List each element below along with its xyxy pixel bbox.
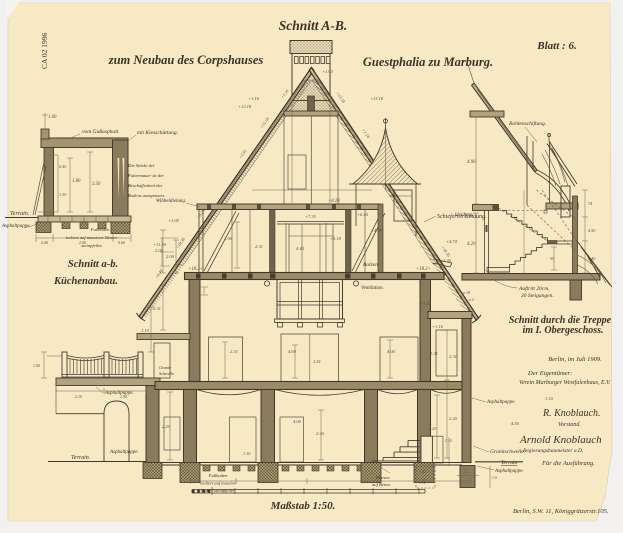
svg-text:a.2: a.2: [469, 297, 474, 302]
svg-text:Fußboden: Fußboden: [208, 473, 228, 478]
svg-text:CA 02 1996: CA 02 1996: [40, 32, 49, 69]
svg-text:Schwelle.: Schwelle.: [159, 371, 175, 376]
svg-text:+11.10: +11.10: [153, 242, 167, 247]
svg-text:1.00: 1.00: [33, 363, 40, 368]
svg-text:+18.2+: +18.2+: [416, 267, 431, 272]
svg-text:2.31: 2.31: [430, 351, 438, 356]
svg-text:4.20: 4.20: [467, 242, 476, 247]
svg-text:4.90: 4.90: [467, 160, 476, 165]
svg-text:2.00: 2.00: [155, 248, 164, 253]
svg-text:2.31: 2.31: [153, 306, 161, 311]
svg-text:2.20: 2.20: [162, 424, 171, 429]
svg-text:Wibbeldielung.: Wibbeldielung.: [156, 199, 186, 204]
svg-text:+1.16: +1.16: [248, 96, 260, 101]
svg-text:Küchenanbau.: Küchenanbau.: [53, 276, 118, 287]
svg-text:zum Neubau des Corpshauses: zum Neubau des Corpshauses: [108, 53, 264, 67]
svg-text:Auftritt 20cm,: Auftritt 20cm,: [518, 285, 550, 292]
svg-text:Arnold Knoblauch: Arnold Knoblauch: [519, 434, 602, 446]
svg-text:a.18: a.18: [463, 290, 470, 295]
svg-text:+5.18: +5.18: [330, 236, 342, 241]
svg-text:+7.33: +7.33: [305, 214, 317, 219]
svg-text:+6.40: +6.40: [357, 212, 369, 217]
svg-text:im I. Obergeschoss.: im I. Obergeschoss.: [522, 325, 603, 336]
svg-text:1.70: 1.70: [419, 481, 426, 485]
svg-text:Futtermauer ist der: Futtermauer ist der: [127, 173, 164, 178]
svg-text:Asphaltpappe.: Asphaltpappe.: [486, 400, 516, 405]
svg-text:mit Kiesschüttung.: mit Kiesschüttung.: [137, 130, 178, 136]
svg-text:+4.30: +4.30: [371, 228, 383, 233]
svg-text:1.1+: 1.1+: [463, 471, 471, 475]
svg-text:0.66: 0.66: [118, 240, 125, 245]
svg-text:4.40: 4.40: [588, 256, 596, 261]
svg-text:Schnitt A-B.: Schnitt A-B.: [279, 18, 348, 33]
svg-text:1.10: 1.10: [445, 439, 452, 443]
svg-text:Ventilation.: Ventilation.: [361, 286, 384, 291]
svg-text:+8.28: +8.28: [328, 199, 340, 204]
svg-text:2.50: 2.50: [79, 240, 86, 245]
svg-text:+1.10: +1.10: [420, 301, 432, 306]
svg-text:0.40: 0.40: [41, 240, 48, 245]
svg-text:Maßstab 1:50.: Maßstab 1:50.: [270, 500, 336, 512]
svg-text:2.10: 2.10: [75, 394, 82, 399]
svg-text:+18.2+: +18.2+: [188, 267, 203, 272]
svg-text:2.41: 2.41: [313, 359, 321, 364]
svg-text:1.80: 1.80: [72, 179, 81, 184]
svg-text:Bohlenschiftung.: Bohlenschiftung.: [509, 120, 546, 127]
svg-text:1.10: 1.10: [243, 451, 251, 456]
svg-text:Für die Ausführung.: Für die Ausführung.: [541, 460, 595, 467]
svg-text:Asphaltpappe.: Asphaltpappe.: [109, 450, 139, 455]
svg-text:Bolzen.: Bolzen.: [363, 262, 379, 268]
svg-text:74: 74: [588, 201, 592, 206]
svg-text:2.00: 2.00: [224, 236, 233, 241]
svg-text:Die Stärke der: Die Stärke der: [127, 163, 155, 168]
svg-text:4.40: 4.40: [296, 246, 305, 251]
svg-text:Beschaffenheit des: Beschaffenheit des: [128, 183, 163, 188]
svg-text:vom Gußasphalt.: vom Gußasphalt.: [82, 128, 120, 135]
svg-text:+1.05: +1.05: [322, 69, 334, 74]
svg-text:Granitschwelle.: Granitschwelle.: [490, 449, 525, 455]
svg-text:4.00: 4.00: [293, 419, 302, 424]
svg-text:2.30: 2.30: [316, 431, 325, 436]
svg-text:1.0: 1.0: [492, 476, 497, 480]
svg-text:Terrain: Terrain: [501, 460, 518, 466]
svg-text:4.50: 4.50: [588, 228, 596, 233]
svg-text:3.50: 3.50: [92, 182, 101, 187]
svg-text:Guestphalia zu Marburg.: Guestphalia zu Marburg.: [363, 55, 493, 69]
svg-text:R. Knoblauch.: R. Knoblauch.: [542, 408, 601, 419]
svg-text:2.20: 2.20: [449, 416, 458, 421]
svg-text:30 Steigungen.: 30 Steigungen.: [520, 293, 554, 299]
svg-text:+1.05: +1.05: [168, 218, 180, 223]
svg-text:2.31: 2.31: [230, 349, 238, 354]
svg-text:Verein Marburger Westfalenhaus: Verein Marburger Westfalenhaus, E.V.: [519, 379, 611, 386]
svg-text:Vorstand.: Vorstand.: [558, 422, 581, 428]
svg-text:1.30: 1.30: [59, 192, 67, 197]
svg-text:4.50: 4.50: [511, 421, 520, 426]
svg-text:+1.16: +1.16: [432, 324, 444, 329]
svg-text:+.47: +.47: [419, 470, 427, 474]
svg-text:+4.74: +4.74: [446, 239, 458, 244]
svg-text:0.40: 0.40: [59, 164, 67, 169]
svg-text:2.31: 2.31: [255, 244, 263, 249]
svg-text:2.00: 2.00: [166, 254, 175, 259]
svg-text:Granit-: Granit-: [159, 365, 172, 370]
svg-text:4.60: 4.60: [288, 349, 297, 354]
svg-text:Asphaltpappe.: Asphaltpappe.: [1, 224, 31, 229]
svg-text:Regierungsbaumeister a.D.: Regierungsbaumeister a.D.: [522, 448, 583, 454]
svg-text:1.10: 1.10: [141, 328, 150, 333]
svg-text:1.00: 1.00: [48, 115, 57, 120]
svg-text:Berlin, S.W. 11, Königgrätzers: Berlin, S.W. 11, Königgrätzerstr.105.: [513, 508, 609, 515]
svg-text:+13.18: +13.18: [238, 104, 252, 109]
svg-text:+1.36: +1.36: [440, 258, 452, 263]
svg-text:1.90: 1.90: [120, 394, 127, 399]
svg-text:2.20: 2.20: [429, 426, 437, 431]
svg-text:+13.18: +13.18: [370, 96, 384, 101]
svg-text:Terrain.: Terrain.: [10, 211, 29, 217]
svg-text:1.10: 1.10: [545, 396, 554, 401]
svg-text:Bodens anzupassen.: Bodens anzupassen.: [128, 193, 165, 198]
svg-text:Terrain.: Terrain.: [71, 455, 90, 461]
svg-text:Blatt : 6.: Blatt : 6.: [536, 40, 576, 52]
svg-text:Der Eigentümer:: Der Eigentümer:: [527, 370, 572, 377]
svg-text:Fliesen: Fliesen: [375, 475, 390, 480]
svg-text:isoliert auf massiven Mauer-: isoliert auf massiven Mauer-: [66, 235, 119, 240]
svg-text:2.31: 2.31: [449, 354, 457, 359]
svg-text:auf Beton.: auf Beton.: [372, 482, 391, 487]
svg-text:Berlin, im Juli 1909.: Berlin, im Juli 1909.: [548, 356, 602, 363]
svg-text:Schnitt a-b.: Schnitt a-b.: [68, 259, 118, 270]
svg-text:kleidung.: kleidung.: [455, 213, 473, 218]
svg-text:Asphaltpappe.: Asphaltpappe.: [494, 469, 524, 474]
svg-text:Fußboden: Fußboden: [90, 227, 110, 232]
svg-text:Asphaltpappe.: Asphaltpappe.: [104, 391, 134, 396]
svg-text:4.00: 4.00: [387, 349, 396, 354]
